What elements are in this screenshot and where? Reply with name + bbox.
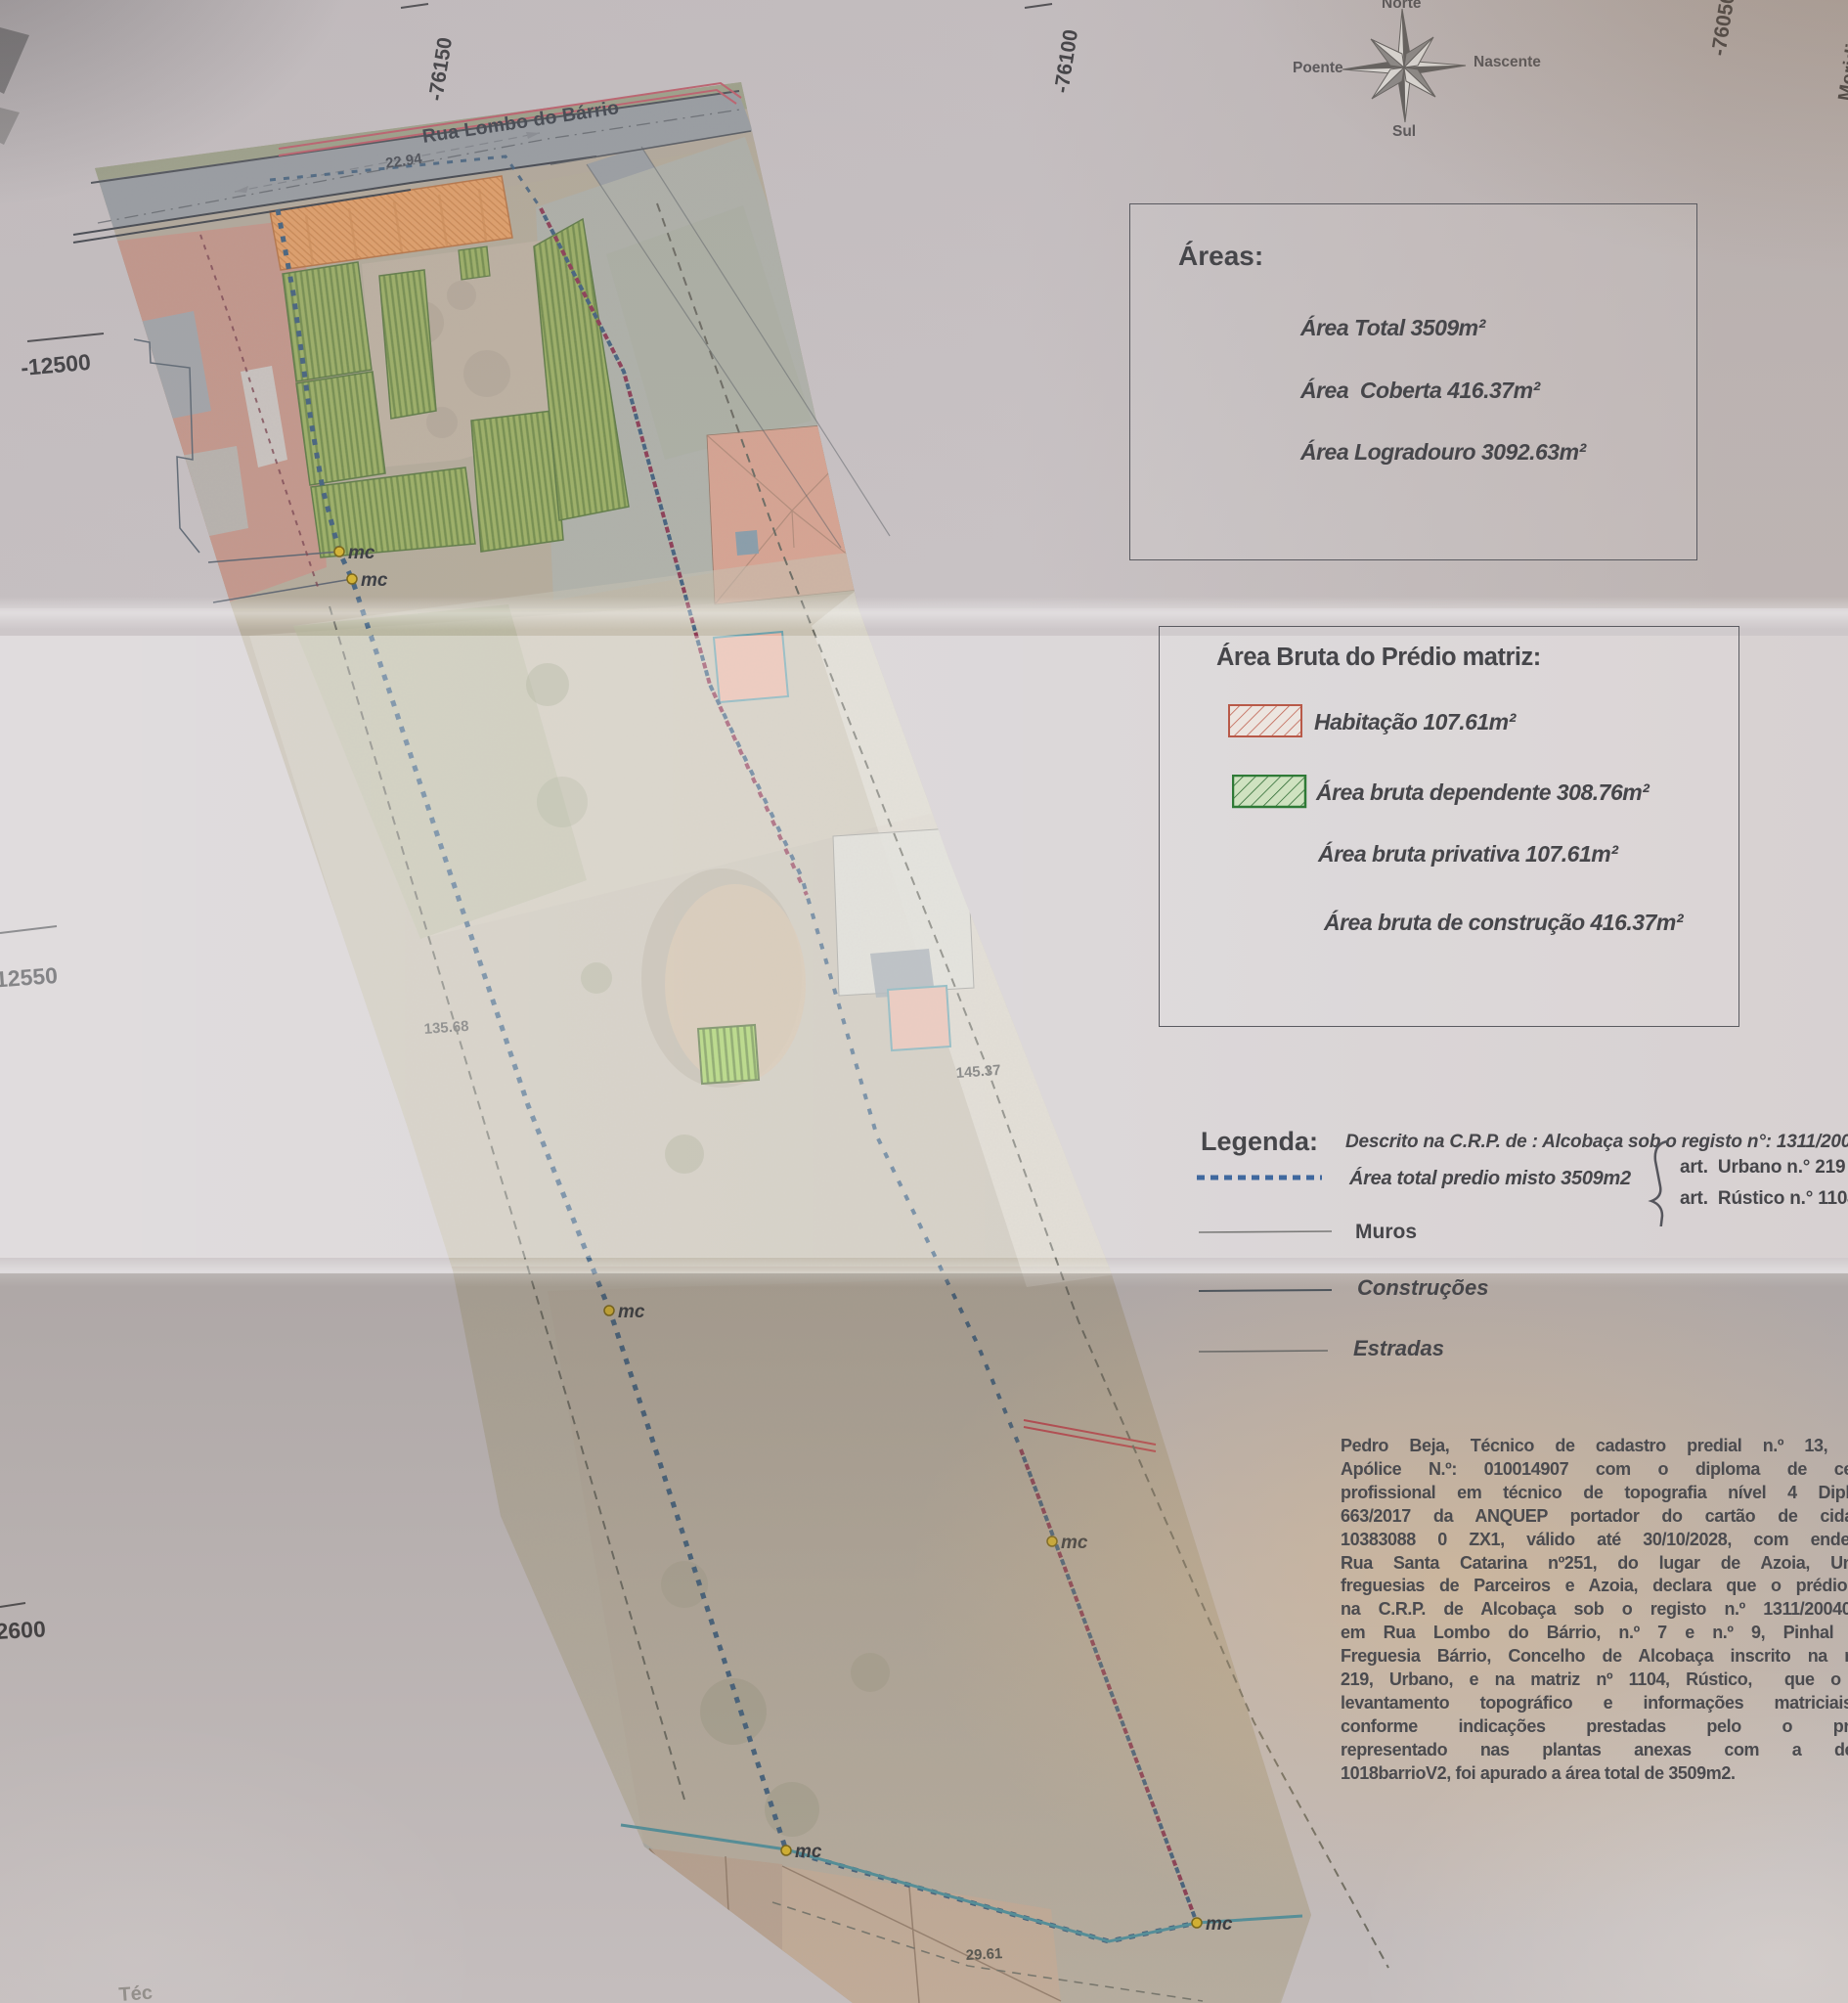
svg-text:Meridiana: Meridiana <box>1834 8 1848 103</box>
svg-text:-76050: -76050 <box>1707 0 1739 58</box>
svg-text:Nascente: Nascente <box>1474 54 1541 70</box>
svg-text:mc: mc <box>1061 1533 1088 1553</box>
svg-text:-12500: -12500 <box>20 349 92 380</box>
svg-text:-12550: -12550 <box>0 962 59 993</box>
svg-text:mc: mc <box>361 570 388 591</box>
svg-text:Sul: Sul <box>1392 123 1416 140</box>
svg-text:Téc: Téc <box>118 1982 154 2003</box>
svg-text:mc: mc <box>618 1302 645 1322</box>
svg-text:mc: mc <box>1206 1914 1233 1935</box>
svg-text:2600: 2600 <box>0 1616 46 1644</box>
svg-text:145.37: 145.37 <box>955 1062 1001 1082</box>
svg-text:-76100: -76100 <box>1050 28 1082 95</box>
svg-text:mc: mc <box>795 1842 822 1862</box>
svg-text:135.68: 135.68 <box>423 1018 469 1038</box>
svg-text:Norte: Norte <box>1382 0 1422 12</box>
svg-text:mc: mc <box>348 543 375 563</box>
svg-text:-76150: -76150 <box>424 36 457 103</box>
svg-text:29.61: 29.61 <box>965 1945 1002 1964</box>
svg-text:Poente: Poente <box>1293 60 1343 76</box>
